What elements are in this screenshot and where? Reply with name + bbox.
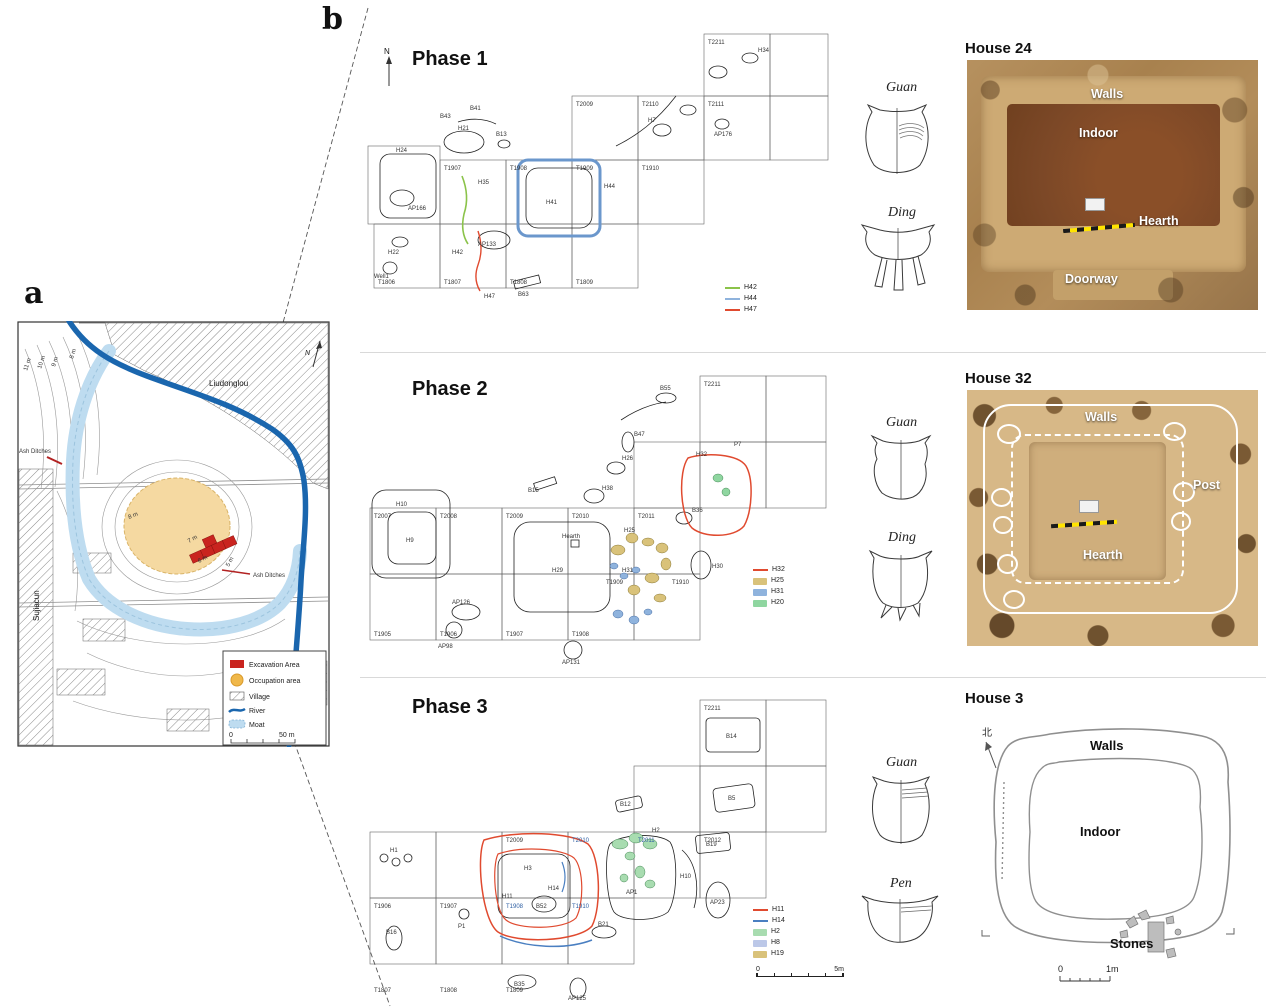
svg-text:B15: B15: [528, 488, 539, 494]
phase2-ding-label: Ding: [888, 530, 916, 546]
svg-text:T2011: T2011: [638, 838, 655, 844]
svg-text:T1908: T1908: [506, 904, 524, 910]
svg-text:AP23: AP23: [710, 900, 725, 906]
svg-text:0: 0: [1058, 964, 1063, 974]
north-arrow-icon: 北: [982, 727, 996, 768]
svg-text:B43: B43: [440, 114, 451, 120]
walls-label: Walls: [1090, 738, 1123, 753]
svg-text:H31: H31: [622, 568, 634, 574]
svg-text:T1906: T1906: [440, 632, 458, 638]
excavation-swatch: [230, 660, 244, 668]
ash-ditches-right-label: Ash Ditches: [253, 573, 285, 579]
legend-swatch: [753, 569, 768, 571]
house24-title: House 24: [965, 40, 1032, 57]
phase3-guan-drawing: [868, 772, 934, 848]
svg-text:B47: B47: [634, 432, 645, 438]
svg-text:T1807: T1807: [444, 280, 462, 286]
svg-text:1m: 1m: [1106, 964, 1119, 974]
svg-text:B16: B16: [386, 930, 397, 936]
svg-text:B35: B35: [514, 982, 525, 988]
ash-ditches-left-label: Ash Ditches: [19, 449, 51, 455]
phase3-legend: H11 H14 H2 H8 H19: [753, 906, 785, 958]
phase2-h25-pits: [611, 533, 671, 602]
svg-text:H10: H10: [396, 502, 408, 508]
svg-text:T2008: T2008: [440, 514, 458, 520]
phase1-site-plan: T1806 T1807 T1808 T1809 T1907 T1908 T190…: [366, 26, 858, 350]
stones-label: Stones: [1110, 936, 1153, 951]
svg-text:Occupation area: Occupation area: [249, 678, 300, 685]
svg-text:B41: B41: [470, 106, 481, 112]
svg-text:AP166: AP166: [408, 206, 427, 212]
legend-swatch: [753, 920, 768, 922]
occupation-swatch: [231, 674, 243, 686]
doorway-label: Doorway: [1065, 272, 1118, 286]
svg-text:AP125: AP125: [568, 996, 587, 1002]
svg-text:T2011: T2011: [638, 514, 655, 520]
liudonglou-label: Liudonglou: [209, 379, 248, 388]
sujiacun-label: Sujiacun: [32, 590, 41, 621]
moat-swatch: [229, 720, 245, 728]
svg-text:H11: H11: [502, 894, 513, 900]
svg-text:B5: B5: [728, 796, 736, 802]
svg-text:H7: H7: [648, 118, 656, 124]
post-label: Post: [1193, 478, 1220, 492]
svg-text:H3: H3: [524, 866, 532, 872]
legend-swatch: [753, 909, 768, 911]
svg-text:Moat: Moat: [249, 722, 265, 729]
svg-text:P7: P7: [734, 442, 742, 448]
svg-text:T1809: T1809: [576, 280, 594, 286]
svg-text:Village: Village: [249, 694, 270, 701]
legend-swatch: [753, 929, 767, 936]
panel-b-letter: b: [322, 2, 343, 37]
svg-text:AP98: AP98: [438, 644, 453, 650]
map-legend: Excavation Area Occupation area Village …: [223, 651, 326, 745]
post-hole: [997, 424, 1021, 444]
phase1-legend: H42 H44 H47: [725, 284, 757, 314]
svg-text:T1910: T1910: [572, 904, 590, 910]
svg-text:T1808: T1808: [510, 280, 528, 286]
svg-text:T1809: T1809: [506, 988, 524, 994]
village-swatch: [230, 692, 244, 700]
svg-text:0: 0: [229, 732, 233, 739]
phase1-guan-label: Guan: [886, 80, 917, 96]
legend-swatch: [725, 287, 740, 289]
legend-swatch: [725, 298, 740, 300]
phase2-guan-label: Guan: [886, 415, 917, 431]
svg-text:T1908: T1908: [510, 166, 528, 172]
svg-text:T2009: T2009: [506, 838, 524, 844]
house3-scalebar: 0 1m: [1058, 964, 1119, 981]
svg-text:T2009: T2009: [506, 514, 524, 520]
svg-text:B14: B14: [726, 734, 737, 740]
phase1-grid-labels: T1806 T1807 T1808 T1809 T1907 T1908 T190…: [378, 40, 725, 286]
svg-text:T2111: T2111: [708, 102, 725, 108]
svg-text:H42: H42: [452, 250, 464, 256]
legend-swatch: [725, 309, 740, 311]
svg-text:B13: B13: [496, 132, 507, 138]
svg-text:H34: H34: [758, 48, 770, 54]
svg-text:H21: H21: [458, 126, 470, 132]
svg-text:Hearth: Hearth: [562, 534, 580, 540]
svg-text:B36: B36: [692, 508, 703, 514]
svg-text:T1909: T1909: [606, 580, 624, 586]
svg-text:T1806: T1806: [378, 280, 396, 286]
svg-text:T2211: T2211: [704, 382, 721, 388]
svg-text:H26: H26: [622, 456, 634, 462]
hearth-label: Hearth: [1083, 548, 1123, 562]
svg-text:B21: B21: [598, 922, 609, 928]
panel-a-letter: a: [24, 276, 43, 311]
photo-board: [1079, 500, 1099, 513]
svg-text:T1907: T1907: [440, 904, 458, 910]
phase2-h20-pits: [713, 474, 730, 496]
svg-text:H41: H41: [546, 200, 558, 206]
site-map: Liudonglou Sujiacun Ash Ditches Ash Ditc…: [17, 321, 330, 747]
walls-label: Walls: [1085, 410, 1117, 424]
svg-text:H22: H22: [388, 250, 400, 256]
svg-text:H38: H38: [602, 486, 614, 492]
post-hole: [1173, 482, 1195, 502]
phase2-h32-outline: [682, 455, 751, 536]
svg-text:River: River: [249, 708, 266, 715]
svg-text:T2211: T2211: [704, 706, 721, 712]
svg-text:T2007: T2007: [374, 514, 392, 520]
svg-text:B55: B55: [660, 386, 671, 392]
phase2-legend: H32 H25 H31 H20: [753, 566, 785, 607]
svg-text:B12: B12: [620, 802, 631, 808]
svg-text:T1807: T1807: [374, 988, 392, 994]
svg-text:T1910: T1910: [672, 580, 690, 586]
phase3-features: [380, 718, 760, 998]
phase2-features: [372, 393, 711, 659]
svg-text:Excavation Area: Excavation Area: [249, 662, 300, 669]
phase3-pen-drawing: [860, 894, 940, 948]
svg-text:T1910: T1910: [642, 166, 660, 172]
phase2-grid-labels: T1905 T1906 T1907 T1908 T1909 T1910 T200…: [374, 382, 721, 638]
phase1-grid-squares: [368, 34, 828, 288]
post-hole: [991, 488, 1012, 507]
svg-text:H47: H47: [484, 294, 496, 300]
legend-swatch: [753, 951, 767, 958]
svg-text:AP176: AP176: [714, 132, 733, 138]
row-separator-2: [360, 677, 1266, 678]
house3-drawing: 北 Walls Indoor Stones 0 1m: [962, 710, 1262, 1000]
row-separator-1: [360, 352, 1266, 353]
occupation-area: [124, 478, 230, 574]
svg-text:AP131: AP131: [562, 660, 581, 666]
svg-text:H24: H24: [396, 148, 408, 154]
svg-text:H35: H35: [478, 180, 490, 186]
svg-text:T2010: T2010: [572, 838, 590, 844]
house3-title: House 3: [965, 690, 1023, 707]
svg-text:Well1: Well1: [374, 274, 390, 280]
hearth-label: Hearth: [1139, 214, 1179, 228]
photo-board: [1085, 198, 1105, 211]
svg-text:H9: H9: [406, 538, 414, 544]
svg-text:H44: H44: [604, 184, 616, 190]
svg-text:T1907: T1907: [444, 166, 462, 172]
svg-text:B19: B19: [706, 842, 717, 848]
phase2-site-plan: T1905 T1906 T1907 T1908 T1909 T1910 T200…: [366, 360, 858, 672]
phase3-pen-label: Pen: [890, 876, 912, 892]
legend-swatch: [753, 578, 767, 585]
house24-photo: Walls Indoor Hearth Doorway: [967, 60, 1258, 310]
phase2-ding-drawing: [868, 548, 934, 622]
svg-text:AP1: AP1: [626, 890, 638, 896]
phase2-guan-drawing: [868, 434, 934, 504]
post-hole: [1171, 512, 1191, 531]
svg-text:H2: H2: [652, 828, 660, 834]
phase3-scalebar: 0 5m: [756, 966, 844, 977]
phase1-guan-drawing: [862, 100, 932, 178]
phase1-ding-drawing: [860, 222, 936, 294]
svg-text:H30: H30: [712, 564, 724, 570]
phase1-ding-label: Ding: [888, 205, 916, 221]
phase3-feature-labels: H1 H3 H11 H14 B52 H2 AP1 H10 AP23 B21 B1…: [386, 734, 737, 1002]
svg-text:50 m: 50 m: [279, 732, 295, 739]
indoor-label: Indoor: [1079, 126, 1118, 140]
svg-text:T1907: T1907: [506, 632, 524, 638]
svg-text:T1808: T1808: [440, 988, 458, 994]
svg-text:H32: H32: [696, 452, 708, 458]
post-hole: [1003, 590, 1025, 609]
svg-text:T2110: T2110: [642, 102, 659, 108]
svg-text:北: 北: [982, 727, 992, 739]
phase1-h47-outline: [476, 231, 481, 291]
post-hole: [1163, 422, 1186, 441]
svg-text:H1: H1: [390, 848, 398, 854]
svg-text:P1: P1: [458, 924, 466, 930]
post-hole: [993, 516, 1013, 534]
svg-text:T1906: T1906: [374, 904, 392, 910]
house32-title: House 32: [965, 370, 1032, 387]
svg-text:T2211: T2211: [708, 40, 725, 46]
legend-swatch: [753, 589, 767, 596]
figure: a b: [0, 0, 1268, 1007]
svg-text:H29: H29: [552, 568, 564, 574]
svg-text:B52: B52: [536, 904, 547, 910]
post-hole: [997, 554, 1018, 574]
svg-text:T2010: T2010: [572, 514, 590, 520]
phase1-features: [380, 53, 758, 289]
house32-photo: Walls Post Hearth: [967, 390, 1258, 646]
legend-swatch: [753, 940, 767, 947]
svg-text:T1909: T1909: [576, 166, 594, 172]
svg-text:H10: H10: [680, 874, 692, 880]
svg-text:T2009: T2009: [576, 102, 594, 108]
svg-text:T1905: T1905: [374, 632, 392, 638]
svg-text:AP126: AP126: [452, 600, 471, 606]
phase1-h42-outline: [462, 176, 468, 244]
phase3-guan-label: Guan: [886, 755, 917, 771]
svg-text:AP133: AP133: [478, 242, 497, 248]
legend-swatch: [753, 600, 767, 607]
indoor-label: Indoor: [1080, 824, 1120, 839]
svg-text:H14: H14: [548, 886, 560, 892]
svg-text:B63: B63: [518, 292, 529, 298]
walls-label: Walls: [1091, 87, 1123, 101]
svg-text:T1908: T1908: [572, 632, 590, 638]
svg-text:H25: H25: [624, 528, 636, 534]
